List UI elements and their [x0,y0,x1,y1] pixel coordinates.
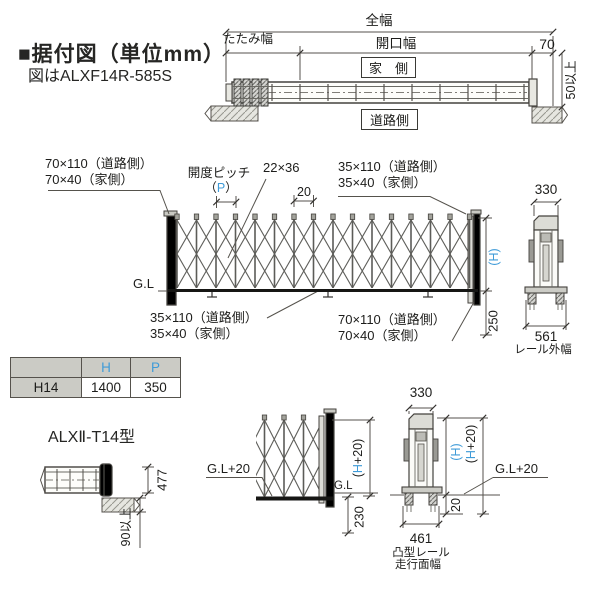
rail-end-post [529,79,537,106]
bottom-size-label-road-left: 35×110（道路側） [150,311,258,326]
base-plate [525,287,567,293]
road-side-label: 道路側 [361,109,418,130]
pitch-p-label: （P） [204,181,237,195]
dim-h-post: (H) [449,443,463,460]
spec-header-p: P [131,358,181,378]
rail-end-cap [100,464,112,496]
side-roller-right [558,240,563,262]
dim-opening-width: 開口幅 [376,36,417,51]
end-post-cap [471,210,481,214]
dim-h20-post: (H+20) [464,425,478,464]
gl20-label-right: G.L+20 [495,462,538,477]
bottom-size-label-road-right: 70×110（道路側） [338,313,446,328]
post-side-view-lower [402,414,442,505]
rail-type-label-2: 走行面幅 [395,559,441,572]
frame-size-label-house: 70×40（家側） [45,173,134,188]
gate-section-view [256,409,336,507]
dim-h20-section: (H+20) [351,439,365,478]
dim-min90: 90以上 [119,508,133,547]
spec-h-value: 1400 [82,378,131,398]
dim-461: 461 [410,531,433,546]
section-post [326,412,334,507]
model-label: ALXⅡ-T14型 [48,429,135,447]
wheel [556,293,564,304]
dim-20-post: 20 [449,498,463,512]
wheel [429,493,437,505]
bottom-size-label-house-left: 35×40（家側） [150,327,239,342]
rail-type-label-1: 凸型レール [392,547,450,560]
dim-min50: 50以上 [564,61,578,100]
dim-fold-width: たたみ幅 [223,32,273,46]
drawing-subtitle: 図はALXF14R-585S [28,68,172,86]
spec-table: H P H14 1400 350 [10,357,181,398]
accordion-lattice [177,220,470,288]
spec-header-blank [11,358,82,378]
side-roller-left [404,439,409,461]
wheel [528,293,536,304]
side-roller-left [529,240,534,262]
bottom-size-label-house-right: 70×40（家側） [338,329,427,344]
rail-left-cap [226,84,232,101]
dim-total-width: 全幅 [366,13,393,28]
dim-330-lower: 330 [410,385,433,400]
post-side-view-upper [525,216,567,304]
installation-drawing: ■据付図（単位mm） 図はALXF14R-585S 全幅 たたみ幅 開口幅 70… [0,0,600,600]
house-side-label: 家 側 [361,57,416,78]
dim-70: 70 [539,37,555,53]
pitch-label: 開度ピッチ [188,166,251,180]
spec-header-h: H [82,358,131,378]
crossbar-size-label: 22×36 [263,161,300,176]
dim-20-top: 20 [297,185,311,199]
left-wall-hatch [211,106,258,121]
section-post-cap [324,409,336,413]
end-size-label-road: 35×110（道路側） [338,160,446,175]
rail-outer-width-label: レール外幅 [514,344,572,357]
dim-477: 477 [156,469,171,491]
drawing-title: ■据付図（単位mm） [18,43,225,67]
table-row: H14 1400 350 [11,378,181,398]
drawing-linework [0,0,600,600]
gl-label-section: G.L [334,480,353,493]
base-plate [402,487,442,493]
spec-row-label: H14 [11,378,82,398]
section-stile [319,416,324,503]
wheel [405,493,413,505]
dim-230: 230 [353,506,368,528]
gl20-label-left: G.L+20 [207,462,250,477]
spec-p-value: 350 [131,378,181,398]
dim-h-elevation: (H) [487,248,501,265]
dim-330-upper: 330 [535,182,558,197]
end-size-label-house: 35×40（家側） [338,176,427,191]
dim-561: 561 [535,329,558,344]
side-roller-right [433,439,438,461]
gl-label-elevation: G.L [133,277,154,292]
dim-250: 250 [487,310,502,332]
right-wall-hatch [532,107,562,123]
frame-size-label-road: 70×110（道路側） [45,157,153,172]
